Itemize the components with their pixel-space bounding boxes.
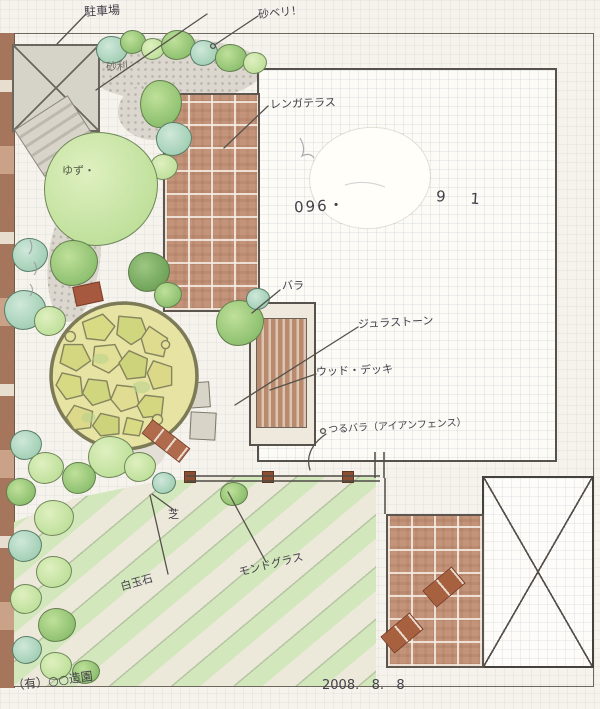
- wood-deck-label: ウッド・デッキ: [316, 361, 394, 380]
- brick-terrace-label: レンガテラス: [270, 94, 336, 112]
- phone-prefix: 096・: [293, 194, 346, 218]
- phone-suffix: 9 1: [435, 187, 490, 209]
- yuzu-label: ゆず・: [62, 162, 95, 178]
- edging-label: 砂ベリ！: [257, 2, 302, 23]
- gravel-label: 砂利: [105, 57, 128, 74]
- reserved-square: [482, 476, 594, 668]
- date: 2008. 8. 8: [322, 678, 405, 693]
- lawn-label: 芝: [168, 506, 179, 522]
- fence-post: [262, 471, 274, 483]
- garden-plan-sheet: 駐車場 砂ベリ！ 砂利 レンガテラス ゆず・ バラ ジュラストーン ウッド・デッ…: [0, 0, 600, 709]
- parking-label: 駐車場: [84, 1, 121, 20]
- rose-label: バラ: [282, 277, 304, 293]
- fence-post: [184, 471, 196, 483]
- deck-planks: [256, 318, 307, 428]
- flagstone-circle-patio: [48, 300, 200, 452]
- fence-post: [342, 471, 354, 483]
